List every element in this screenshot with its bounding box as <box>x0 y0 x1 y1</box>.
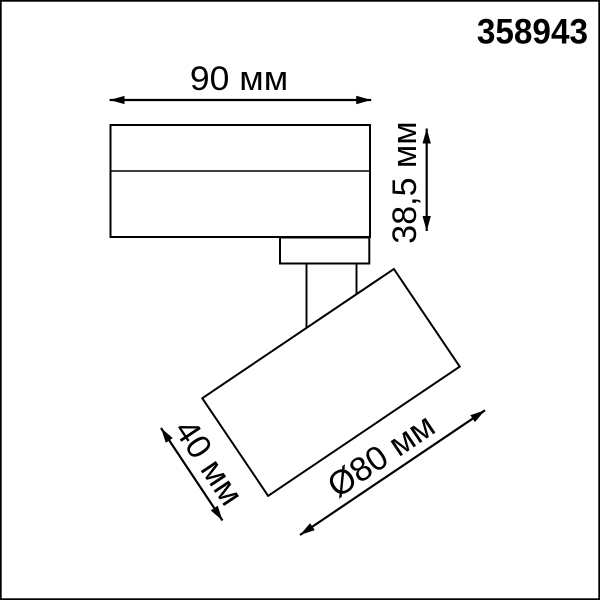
svg-text:90 мм: 90 мм <box>190 61 288 98</box>
svg-text:358943: 358943 <box>477 13 588 52</box>
svg-text:38,5 мм: 38,5 мм <box>386 121 424 243</box>
